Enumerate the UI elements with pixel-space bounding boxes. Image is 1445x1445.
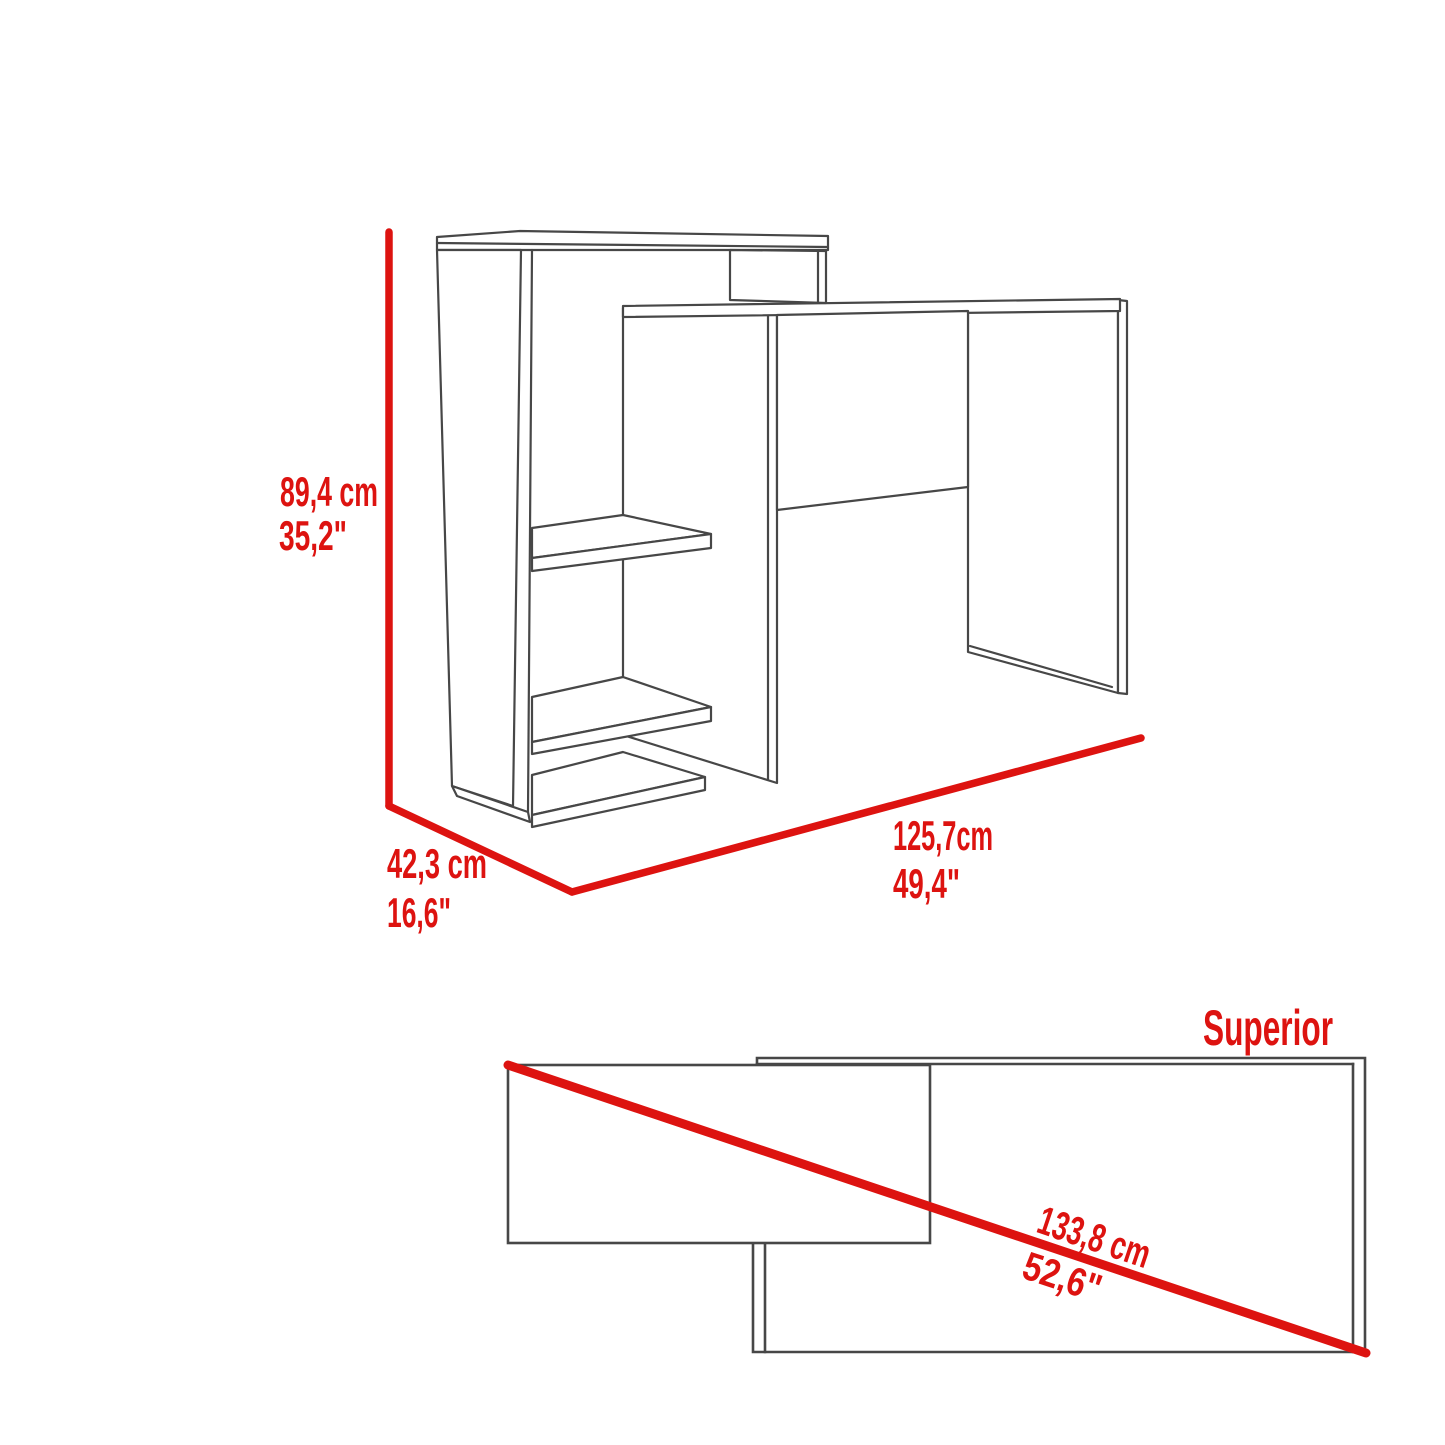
bookcase-left-panel <box>437 250 521 806</box>
depth-label-in: 16,6" <box>387 889 451 936</box>
furniture-dimension-diagram: 89,4 cm 35,2" 42,3 cm 16,6" 125,7cm 49,4… <box>0 0 1445 1445</box>
width-label-in: 49,4" <box>893 860 960 907</box>
desk-back-panel <box>777 311 968 510</box>
topview-title: Superior <box>1203 1000 1333 1056</box>
height-label-cm: 89,4 cm <box>280 468 378 515</box>
depth-label-cm: 42,3 cm <box>387 840 487 887</box>
top-view-drawing: Superior 133,8 cm 52,6" <box>508 1000 1366 1353</box>
desk-right-panel <box>968 300 1118 693</box>
upper-cubby-panel <box>730 250 826 303</box>
height-label-in: 35,2" <box>279 512 347 559</box>
diagram-svg: 89,4 cm 35,2" 42,3 cm 16,6" 125,7cm 49,4… <box>0 0 1445 1445</box>
desk-right-panel-thickness <box>1118 300 1127 694</box>
width-label-cm: 125,7cm <box>893 812 993 859</box>
topview-bookcase-outline <box>508 1065 930 1243</box>
width-dimension-line <box>572 738 1141 892</box>
isometric-desk-drawing <box>437 231 1127 827</box>
